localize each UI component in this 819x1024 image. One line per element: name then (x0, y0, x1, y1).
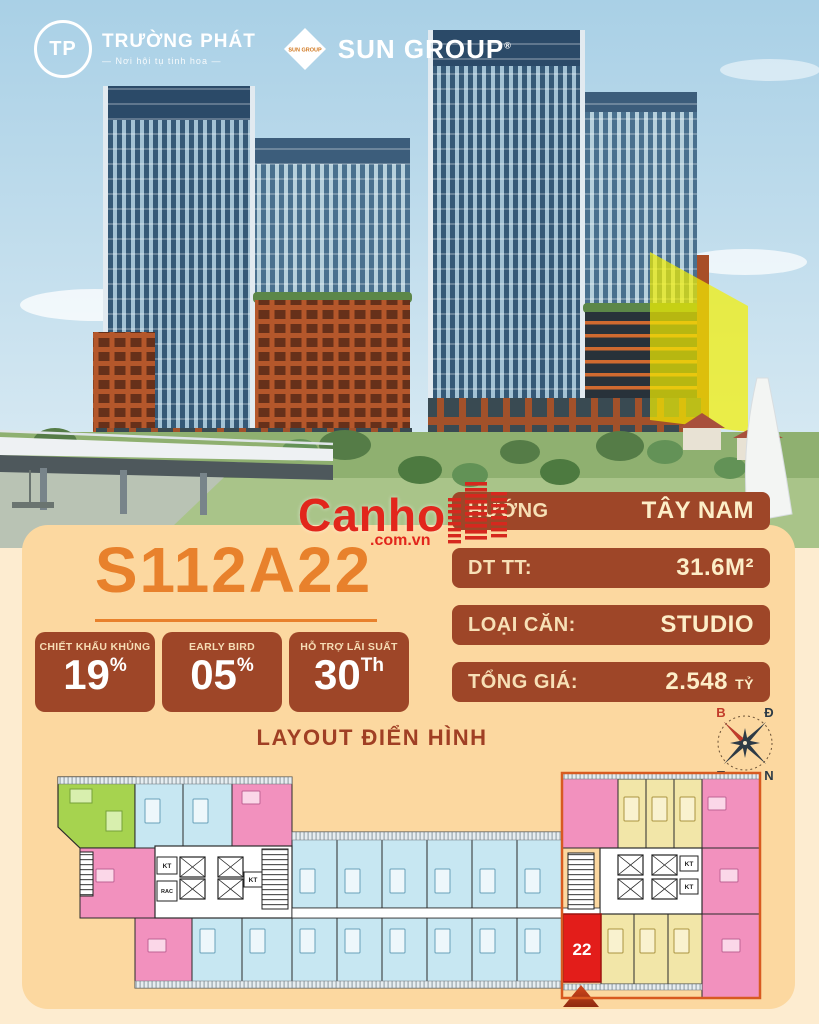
badge-interest-support: HỖ TRỢ LÃI SUẤT 30Th (289, 632, 409, 712)
badge-discount-value: 19% (63, 653, 127, 697)
badge-interest-support-value: 30Th (314, 653, 384, 697)
building-render-photo (0, 0, 819, 548)
sun-group-logo: SUN GROUP SUN GROUP® (282, 26, 512, 72)
spec-label-area: DT TT: (468, 557, 532, 580)
compass-east-label: Đ (764, 705, 773, 720)
svg-text:22: 22 (573, 940, 592, 959)
spec-row-price: TỔNG GIÁ: 2.548 TỶ (452, 662, 770, 702)
spec-value-type: STUDIO (660, 611, 754, 639)
spec-label-type: LOẠI CĂN: (468, 614, 576, 637)
sun-group-reg: ® (504, 40, 512, 50)
unit-code-underline (95, 619, 377, 622)
spec-value-area: 31.6M² (676, 554, 754, 582)
kt-label: KT (249, 877, 258, 884)
badge-discount: CHIẾT KHẤU KHỦNG 19% (35, 632, 155, 712)
truong-phat-monogram-icon: TP (34, 20, 92, 78)
spec-row-type: LOẠI CĂN: STUDIO (452, 605, 770, 645)
truong-phat-logo: TP TRƯỜNG PHÁT — Nơi hội tụ tinh hoa — (34, 20, 256, 78)
unit-22-marker: 22 (563, 914, 601, 1007)
spec-row-area: DT TT: 31.6M² (452, 548, 770, 588)
unit-info-card: S112A22 CHIẾT KHẤU KHỦNG 19% EARLY BIRD … (22, 525, 795, 1009)
rac-label: RAC (161, 889, 173, 895)
truong-phat-name: TRƯỜNG PHÁT (102, 32, 256, 53)
badge-early-bird: EARLY BIRD 05% (162, 632, 282, 712)
left-tower (93, 86, 412, 464)
compass-west-label: B (716, 705, 725, 720)
svg-text:SUN GROUP: SUN GROUP (288, 48, 322, 54)
badge-early-bird-value: 05% (190, 653, 254, 697)
kt-label: KT (685, 884, 694, 891)
canho-watermark: Canho .com.vn (298, 488, 446, 542)
sun-group-name: SUN GROUP® (338, 34, 512, 65)
kt-label: KT (163, 863, 172, 870)
spec-label-price: TỔNG GIÁ: (468, 671, 578, 694)
truong-phat-tagline: — Nơi hội tụ tinh hoa — (102, 56, 256, 66)
property-poster: TP TRƯỜNG PHÁT — Nơi hội tụ tinh hoa — S… (0, 0, 819, 1024)
kt-label: KT (685, 861, 694, 868)
promo-badges: CHIẾT KHẤU KHỦNG 19% EARLY BIRD 05% HỖ T… (35, 632, 409, 712)
spec-value-direction: TÂY NAM (642, 497, 754, 525)
header-logos: TP TRƯỜNG PHÁT — Nơi hội tụ tinh hoa — S… (34, 20, 512, 78)
typical-floorplan: KT RAC KT KT KT (30, 769, 795, 1009)
spec-value-price: 2.548 TỶ (665, 668, 754, 696)
canho-building-icon (448, 478, 518, 548)
layout-title: LAYOUT ĐIỂN HÌNH (22, 725, 722, 751)
canho-domain-text: .com.vn (370, 532, 430, 550)
sun-group-diamond-icon: SUN GROUP (282, 26, 328, 72)
